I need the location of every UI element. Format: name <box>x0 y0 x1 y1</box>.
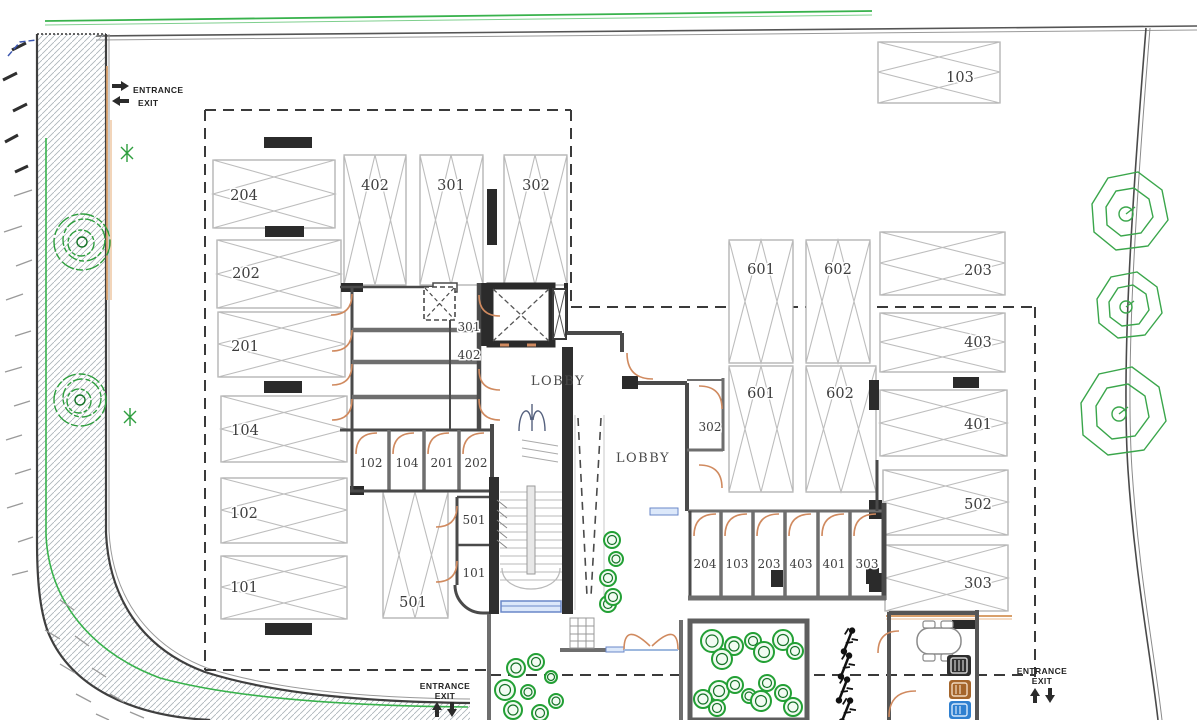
parking-space: 102 <box>221 478 347 543</box>
right-trees <box>1081 172 1168 455</box>
bike-icon <box>830 695 861 720</box>
parking-space-label: 302 <box>522 178 550 194</box>
parking-space-label: 501 <box>399 595 427 611</box>
exit-text: EXIT <box>1032 676 1053 686</box>
parking-space: 501 <box>383 492 448 618</box>
parking-space: 104 <box>221 396 347 462</box>
bike-icon <box>829 650 860 680</box>
room-label: 102 <box>360 456 383 470</box>
bin-blue-icon <box>949 701 971 719</box>
parking-space: 201 <box>218 312 345 377</box>
parking-space-label: 403 <box>964 335 992 351</box>
room-label: 501 <box>463 513 486 527</box>
parking-space-label: 601 <box>747 262 775 278</box>
blue-survey-mark <box>8 40 36 56</box>
room-label: 103 <box>726 557 749 571</box>
parking-space-label: 401 <box>964 417 992 433</box>
exit-arrow-icon <box>112 96 129 106</box>
room-label: 403 <box>790 557 813 571</box>
right-boundary-line <box>1126 28 1162 720</box>
parking-space-label: 402 <box>361 178 389 194</box>
room-label: 201 <box>431 456 454 470</box>
survey-dash-marks <box>3 43 28 172</box>
bin-dark-icon <box>947 655 971 676</box>
parking-space-label: 201 <box>231 339 259 355</box>
parking-space: 602 <box>806 240 870 363</box>
parking-space: 401 <box>880 390 1007 456</box>
parking-space-label: 301 <box>437 178 465 194</box>
entrance-arrow-icon <box>112 81 129 91</box>
room-label: 104 <box>396 456 419 470</box>
lobby-label-upper: LOBBY <box>531 374 585 389</box>
parking-space-label: 102 <box>230 506 258 522</box>
parking-space-label: 202 <box>232 266 260 282</box>
exit-text: EXIT <box>435 691 456 701</box>
parking-space: 601 <box>729 366 793 492</box>
entrance-text: ENTRANCE <box>420 681 470 691</box>
parking-space: 502 <box>883 470 1008 535</box>
room-label: 203 <box>758 557 781 571</box>
parking-space: 601 <box>729 240 793 363</box>
exit-text: EXIT <box>138 98 159 108</box>
parking-right-column: 203 403 401 502 303 <box>880 232 1008 611</box>
parking-space: 204 <box>213 160 335 228</box>
entrance-label-top-left: ENTRANCE EXIT <box>112 81 183 108</box>
parking-space-label: 502 <box>964 497 992 513</box>
room-label: 302 <box>699 420 722 434</box>
parking-center-pairs: 601 602 601 602 <box>729 240 876 492</box>
entrance-text: ENTRANCE <box>1017 666 1067 676</box>
parking-space-label: 204 <box>230 188 258 204</box>
parking-space-label: 602 <box>826 386 854 402</box>
entrance-double-door <box>624 634 650 650</box>
shrub-sprig-icon <box>124 408 136 426</box>
shrub-sprig-icon <box>121 144 133 162</box>
entrance-text: ENTRANCE <box>133 85 183 95</box>
top-boundary-lines <box>45 11 1197 40</box>
tree-icon <box>1092 172 1168 250</box>
room-label: 204 <box>694 557 717 571</box>
planter-box <box>690 621 807 720</box>
room-label: 101 <box>463 566 486 580</box>
down-arrow-icon <box>1045 688 1055 703</box>
parking-space-label: 103 <box>946 70 974 86</box>
waste-bins <box>947 655 971 719</box>
room-label: 402 <box>458 348 481 362</box>
room-label: 303 <box>856 557 879 571</box>
up-arrow-icon <box>1030 688 1040 703</box>
parking-space: 301 <box>420 155 483 285</box>
room-label: 401 <box>823 557 846 571</box>
parking-space: 302 <box>504 155 567 285</box>
parking-space-label: 303 <box>964 576 992 592</box>
parking-space-label: 602 <box>824 262 852 278</box>
parking-space: 103 <box>878 42 1000 103</box>
parking-top-row: 402 301 302 <box>344 155 567 285</box>
parking-space: 203 <box>880 232 1005 295</box>
bike-icon <box>827 674 858 704</box>
bin-brown-icon <box>949 680 971 699</box>
parking-space: 403 <box>880 313 1005 372</box>
bike-parking <box>827 625 863 720</box>
tree-icon <box>1081 367 1166 455</box>
room-label: 202 <box>465 456 488 470</box>
entrance-label-bottom-right: ENTRANCE EXIT <box>1017 666 1067 703</box>
paver-strip <box>570 618 594 648</box>
parking-space-label: 203 <box>964 263 992 279</box>
stair-door-icon <box>519 404 545 431</box>
parking-space-label: 104 <box>231 423 259 439</box>
parking-space: 303 <box>885 545 1008 611</box>
parking-space: 202 <box>217 240 341 308</box>
lobby-label-lower: LOBBY <box>616 451 670 466</box>
parking-space: 602 <box>806 366 876 492</box>
parking-space-label: 101 <box>230 580 258 596</box>
parking-space: 402 <box>344 155 406 285</box>
bike-icon <box>832 625 863 655</box>
site-plan: 204 202 201 104 102 101 <box>0 0 1198 720</box>
room-label: 301 <box>458 320 481 334</box>
parking-space: 101 <box>221 556 347 619</box>
parking-space-label: 601 <box>747 386 775 402</box>
